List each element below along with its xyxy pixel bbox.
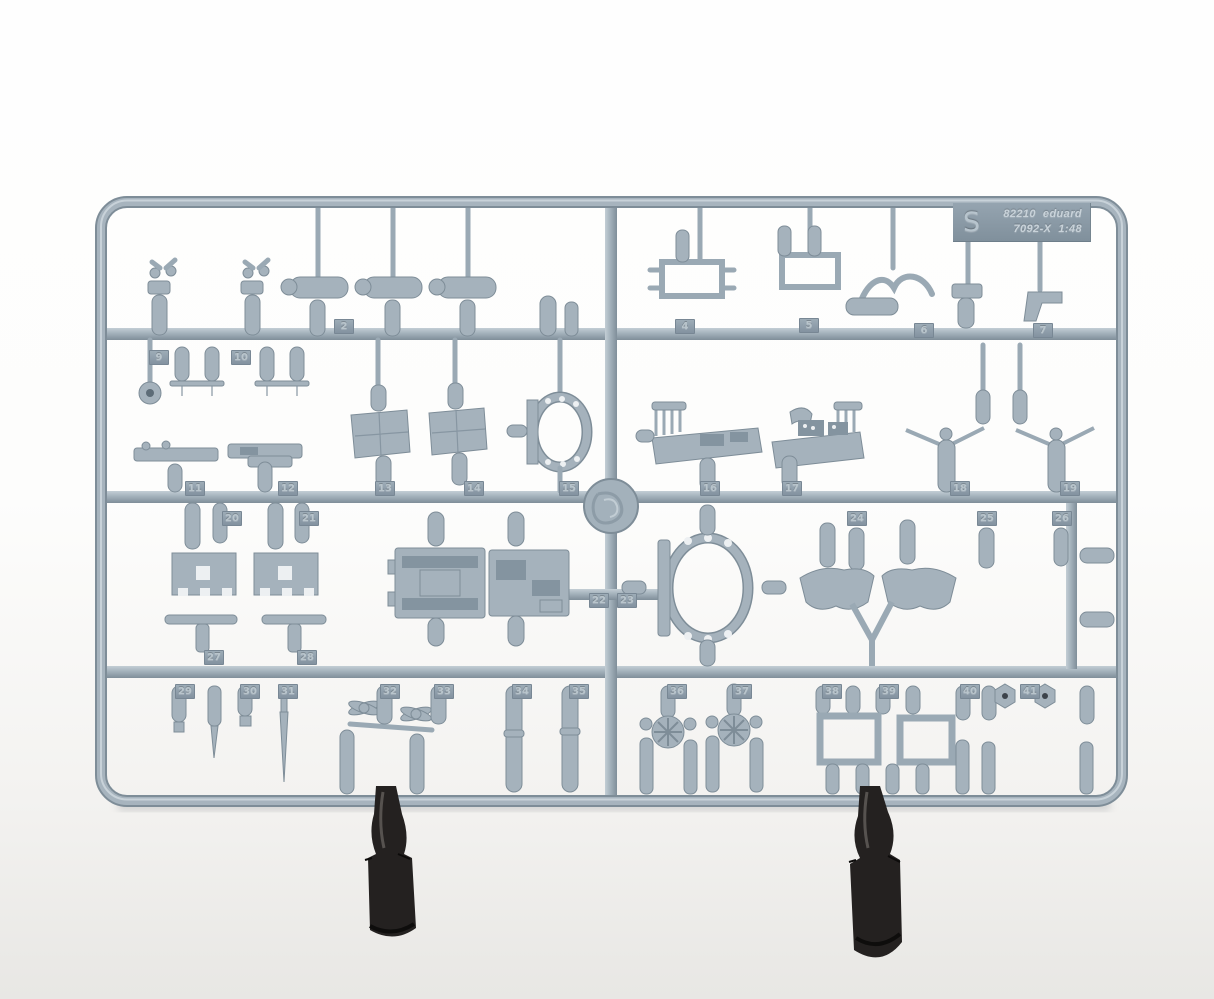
mold-code: 7092-X: [1014, 223, 1052, 235]
sprue-illustration: .p{fill:#a5b2bc;stroke:#7e8d98;stroke-wi…: [0, 0, 1214, 999]
scale-text: 1:48: [1058, 223, 1082, 235]
brand-name: eduard: [1043, 208, 1082, 220]
kit-number: 82210: [1003, 208, 1036, 220]
sprue-letter: S: [963, 209, 980, 236]
sprue-label-plate: S 82210eduard 7092-X1:48: [953, 203, 1091, 242]
photo-canvas: .p{fill:#a5b2bc;stroke:#7e8d98;stroke-wi…: [0, 0, 1214, 999]
sprue-product-photo: { "label": { "mold_letter": "S", "kit_nu…: [0, 0, 1214, 999]
runner-center-boss: [584, 479, 638, 533]
label-text: 82210eduard 7092-X1:48: [1003, 207, 1082, 237]
runner-stems: [160, 202, 1040, 332]
stand-clip-right: [849, 786, 902, 957]
